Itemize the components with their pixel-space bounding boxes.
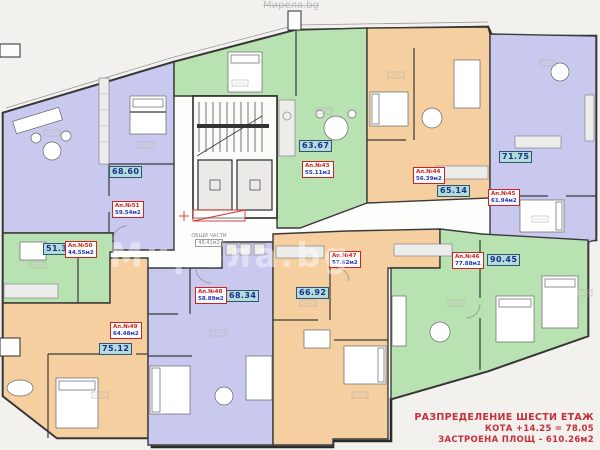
apartment-number: Ап.№50 xyxy=(68,243,94,250)
bed-icon xyxy=(370,92,408,126)
total-area-badge-ap45: 71.75 xyxy=(499,151,532,163)
apartment-number: Ап.№43 xyxy=(305,163,331,170)
kitchen-counter xyxy=(394,244,452,256)
bed-icon xyxy=(56,378,98,428)
sofa-icon xyxy=(246,356,272,400)
apartment-number: Ап.№44 xyxy=(416,169,442,176)
elevator-icon xyxy=(198,160,232,210)
kitchen-counter xyxy=(4,284,58,298)
apartment-label-ap46: Ап.№46 77.88м2 xyxy=(452,252,484,269)
apartment-label-ap47: Ап.№47 57.62м2 xyxy=(329,251,361,268)
apartment-label-ap44: Ап.№44 56.39м2 xyxy=(413,167,445,184)
apartment-number: Ап.№49 xyxy=(113,324,139,331)
apartment-net-area: 57.62м2 xyxy=(332,260,358,267)
bed-icon xyxy=(130,96,166,134)
total-area-badge-ap51: 68.60 xyxy=(109,166,142,178)
apartment-number: Ап.№47 xyxy=(332,253,358,260)
apartment-net-area: 61.94м2 xyxy=(491,198,517,205)
wardrobe-icon xyxy=(585,95,594,141)
kitchen-counter xyxy=(515,136,561,148)
apartment-label-ap48: Ап.№48 58.89м2 xyxy=(195,287,227,304)
elevation-note: КОТА +14.25 = 78.05 xyxy=(414,424,594,435)
common-area-value: 48.41м2 xyxy=(195,239,222,247)
apartment-51-region xyxy=(3,62,174,250)
apartment-number: Ап.№48 xyxy=(198,289,224,296)
table-icon xyxy=(215,387,233,405)
bed-icon xyxy=(150,366,190,414)
apartment-number: Ап.№51 xyxy=(115,203,141,210)
total-area-badge-ap46: 90.45 xyxy=(487,254,520,266)
apartment-label-ap49: Ап.№49 64.48м2 xyxy=(110,322,142,339)
floor-plan-canvas: 68.60 63.67 65.14 71.75 51.33 75.12 68.3… xyxy=(0,0,600,450)
apartment-number: Ап.№45 xyxy=(491,191,517,198)
bed-icon xyxy=(542,276,578,328)
apartment-net-area: 55.11м2 xyxy=(305,170,331,177)
built-area-note: ЗАСТРОЕНА ПЛОЩ - 610.26м2 xyxy=(414,435,594,446)
bed-icon xyxy=(344,346,386,384)
bathtub-icon xyxy=(7,380,33,396)
table-icon xyxy=(551,63,569,81)
wardrobe-icon xyxy=(99,78,109,164)
total-area-badge-ap44: 65.14 xyxy=(437,185,470,197)
sofa-icon xyxy=(454,60,480,108)
apartment-number: Ап.№46 xyxy=(455,254,481,261)
total-area-badge-ap43: 63.67 xyxy=(299,140,332,152)
apartment-net-area: 77.88м2 xyxy=(455,261,481,268)
floor-plan-drawing xyxy=(0,0,600,450)
table-icon xyxy=(430,322,450,342)
apartment-net-area: 59.54м2 xyxy=(115,210,141,217)
table-icon xyxy=(304,330,330,348)
floor-plan-page: { "plan": { "watermark": "Мирела.bg", "c… xyxy=(0,0,600,450)
apartment-label-ap45: Ап.№45 61.94м2 xyxy=(488,189,520,206)
apartment-label-ap51: Ап.№51 59.54м2 xyxy=(112,201,144,218)
kitchen-counter xyxy=(279,100,295,156)
apartment-net-area: 58.89м2 xyxy=(198,296,224,303)
apartment-48-region xyxy=(148,242,273,445)
stair-core xyxy=(193,96,277,218)
kitchen-counter xyxy=(276,246,324,258)
table-icon xyxy=(422,108,442,128)
total-area-badge-ap47: 66.92 xyxy=(296,287,329,299)
apartment-net-area: 64.48м2 xyxy=(113,331,139,338)
bed-icon xyxy=(496,296,534,342)
apartment-label-ap50: Ап.№50 44.55м2 xyxy=(65,241,97,258)
floor-title: РАЗПРЕДЕЛЕНИЕ ШЕСТИ ЕТАЖ xyxy=(414,412,594,424)
total-area-badge-ap49: 75.12 xyxy=(99,343,132,355)
title-block: РАЗПРЕДЕЛЕНИЕ ШЕСТИ ЕТАЖ КОТА +14.25 = 7… xyxy=(414,412,594,446)
total-area-badge-ap48: 68.34 xyxy=(226,290,259,302)
apartment-net-area: 44.55м2 xyxy=(68,250,94,257)
common-area-label: ОБЩИ ЧАСТИ 48.41м2 xyxy=(178,233,240,247)
apartment-label-ap43: Ап.№43 55.11м2 xyxy=(302,161,334,178)
elevator-icon xyxy=(237,160,272,210)
apartment-net-area: 56.39м2 xyxy=(416,176,442,183)
sofa-icon xyxy=(392,296,406,346)
